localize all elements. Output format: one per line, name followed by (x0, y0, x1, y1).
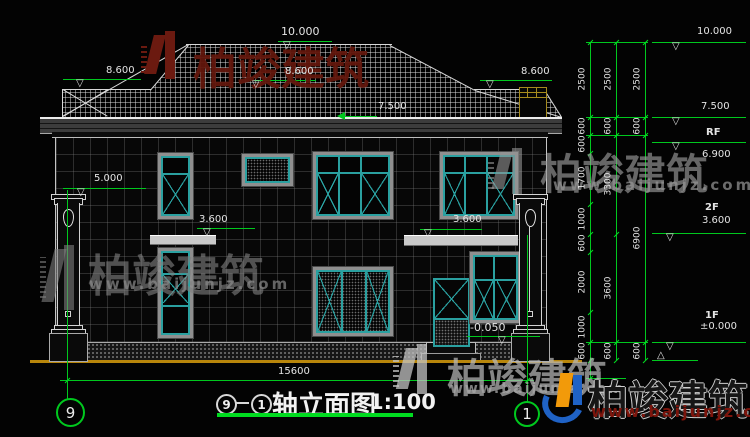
title-axis-9: 9 (216, 394, 237, 415)
level-line-7500 (652, 117, 746, 118)
level-marker: ▽ (672, 142, 680, 152)
entry-door (433, 278, 470, 347)
chain1-600d: 600 (578, 342, 589, 359)
title-underline (217, 413, 413, 417)
chain2-600b: 600 (604, 342, 615, 359)
label-entrance: -0.050 (470, 322, 505, 333)
level-rf-value: 6.900 (702, 149, 731, 160)
watermark-logo-left (40, 245, 80, 313)
label-8600-right: 8.600 (521, 66, 550, 77)
chain1-1000b: 1000 (578, 316, 589, 339)
chain2-3300: 3300 (604, 173, 615, 196)
watermark-logo-bottom-center (393, 344, 439, 396)
label-8600-mid: 8.600 (285, 66, 314, 77)
watermark-url-bottom-right: www.baijunjz.com (591, 402, 750, 421)
level-marker: ▽ (672, 42, 680, 52)
dim-line-8600-left (63, 79, 141, 80)
dim-line-7500-eave (344, 116, 377, 117)
window-1f-center (313, 267, 393, 336)
chain3-600b: 600 (633, 342, 644, 359)
watermark-url-left: www.baijunjz.com (89, 275, 290, 293)
dim-chain-1 (590, 42, 591, 378)
chain1-600c: 600 (578, 234, 589, 251)
label-ridge-10000: 10.000 (281, 26, 320, 37)
window-2f-center (313, 152, 393, 219)
elevation-drawing: ▽ ▽ ▽ ▽ ▽ ▽ ▽ ▽ ▽ ▽ ▽ ▽ ▽ △ 10.000 8.600… (0, 0, 750, 437)
axis-1-number: 1 (522, 405, 532, 423)
arrow-7500 (337, 112, 345, 120)
level-2f-name: 2F (705, 202, 719, 213)
axis-bubble-1: 1 (514, 401, 540, 427)
watermark-logo-right (488, 148, 528, 196)
level-10000: 10.000 (697, 26, 732, 37)
canopy-entry (404, 235, 518, 246)
axis-9-number: 9 (66, 404, 76, 422)
chain3-6900: 6900 (633, 227, 644, 250)
window-1f-right (470, 252, 521, 323)
chain3-2500: 2500 (633, 68, 644, 91)
level-2f-value: 3.600 (702, 215, 731, 226)
title-axis-1: 1 (251, 394, 272, 415)
chain1-1000a: 1000 (578, 208, 589, 231)
watermark-logo-bottom-right (541, 371, 585, 425)
axis-bubble-9: 9 (56, 398, 85, 427)
chain2-3600: 3600 (604, 277, 615, 300)
level-marker: ▽ (77, 188, 85, 198)
label-3600-right: 3.600 (453, 214, 482, 225)
pillar-left-pedestal (49, 333, 88, 362)
logo-block-blue (573, 375, 582, 405)
label-8600-left: 8.600 (106, 65, 135, 76)
chain1-1700: 1700 (578, 167, 589, 190)
watermark-brand-top: 柏竣建筑 (193, 33, 369, 97)
chain1-2500: 2500 (578, 68, 589, 91)
chain2-600a: 600 (604, 117, 615, 134)
title-dash (236, 402, 249, 404)
window-2f-vent (242, 154, 293, 186)
title-9: 9 (222, 398, 230, 412)
chimney (519, 87, 547, 121)
watermark-brand-left: 柏竣建筑 (88, 240, 264, 304)
level-1f-name: 1F (705, 310, 719, 321)
level-marker: ▽ (283, 41, 291, 51)
chain1-600a: 600 (578, 117, 589, 134)
roof-edge-left (62, 90, 63, 117)
level-1f-value: ±0.000 (700, 321, 737, 332)
level-7500: 7.500 (701, 101, 730, 112)
chain1-2000: 2000 (578, 271, 589, 294)
level-marker: ▽ (486, 80, 494, 90)
lantern-right-rod (529, 226, 530, 311)
label-7500-eave: 7.500 (378, 101, 407, 112)
level-marker: ▽ (76, 79, 84, 89)
level-marker: ▽ (666, 342, 674, 352)
chain3-600a: 600 (633, 117, 644, 134)
level-marker: ▽ (252, 80, 260, 90)
watermark-logo-top (141, 31, 187, 81)
chain2-2500: 2500 (604, 68, 615, 91)
window-2f-stair (158, 153, 193, 219)
label-total-width: 15600 (278, 366, 310, 377)
dim-line-5000 (63, 188, 146, 189)
chain1-600b: 600 (578, 135, 589, 152)
parapet-trim (52, 132, 548, 138)
level-marker: ▽ (672, 117, 680, 127)
level-marker-up: △ (657, 351, 665, 361)
title-1: 1 (257, 398, 265, 412)
level-marker: ▽ (424, 229, 432, 239)
level-rf-name: RF (706, 127, 721, 138)
level-marker: ▽ (498, 336, 506, 346)
level-marker: ▽ (666, 233, 674, 243)
label-5000: 5.000 (94, 173, 123, 184)
level-line-10000 (652, 42, 746, 43)
level-marker: ▽ (203, 228, 211, 238)
label-3600-left: 3.600 (199, 214, 228, 225)
